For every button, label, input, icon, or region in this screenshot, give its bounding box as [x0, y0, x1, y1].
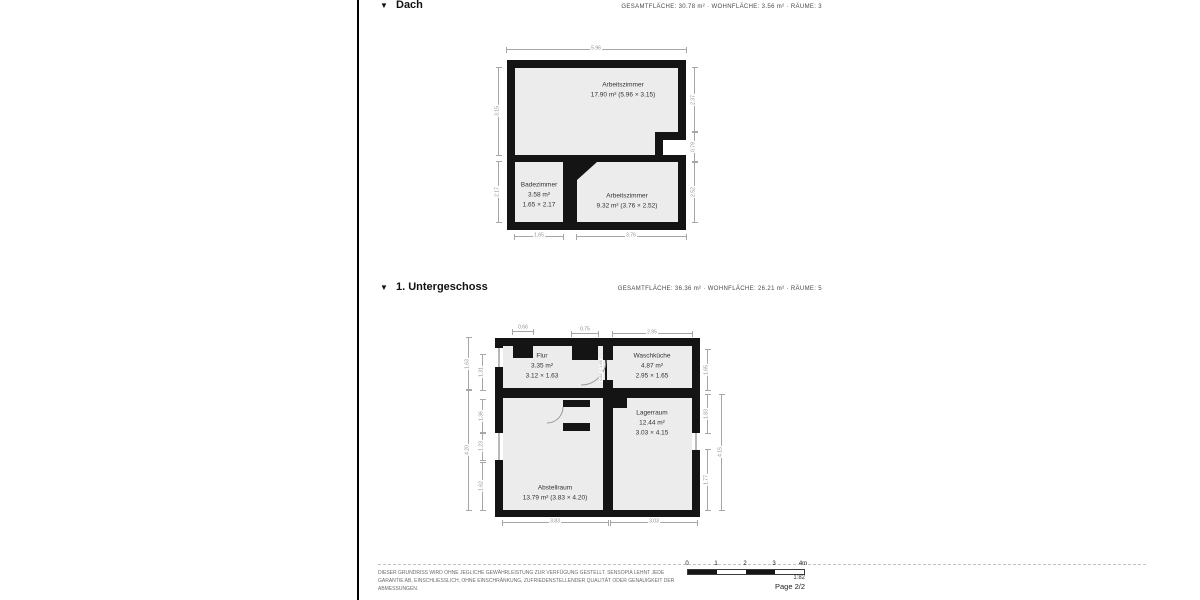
- scale-tick-label: 4m: [799, 561, 807, 567]
- wall: [503, 388, 692, 398]
- dimension-label: 2.37: [692, 94, 697, 106]
- room-label-abstellraum: Abstellraum 13.79 m² (3.83 × 4.20): [523, 483, 588, 503]
- dimension-label: 3.83: [549, 520, 561, 525]
- page-number: Page 2/2: [687, 582, 805, 591]
- section-stats: GESAMTFLÄCHE: 36.36 m² · WOHNFLÄCHE: 26.…: [618, 286, 822, 292]
- wall: [563, 155, 577, 230]
- dimension-label: 5.96: [590, 47, 602, 52]
- room-name: Abstellraum: [523, 483, 588, 493]
- dimension-line: [513, 331, 533, 332]
- dimension-label: 1.63: [466, 358, 471, 370]
- wall-stub: [563, 400, 590, 407]
- wall: [678, 155, 686, 230]
- scale-ratio: 1:82: [687, 575, 805, 581]
- wall-recess: [663, 140, 686, 155]
- wall: [507, 155, 686, 162]
- scale-segment: [688, 570, 717, 574]
- room-size: 3.12 × 1.63: [526, 371, 559, 381]
- dimension-label: 3.76: [625, 234, 637, 239]
- wall-stub: [563, 423, 590, 431]
- wall: [507, 60, 515, 230]
- dimension-line: [572, 333, 598, 334]
- wall: [678, 60, 686, 132]
- window-glass: [498, 433, 500, 460]
- room-area: 3.35 m²: [526, 361, 559, 371]
- room-area: 4.87 m²: [634, 361, 671, 371]
- dimension-label: 1.65: [533, 234, 545, 239]
- collapse-triangle-icon[interactable]: ▼: [380, 284, 388, 292]
- scale-segment: [746, 570, 775, 574]
- wall-notch: [572, 340, 598, 360]
- section-title: Dach: [396, 0, 423, 11]
- room-label-flur: Flur 3.35 m² 3.12 × 1.63: [526, 351, 559, 380]
- section-header-untergeschoss[interactable]: ▼ 1. Untergeschoss GESAMTFLÄCHE: 36.36 m…: [378, 283, 822, 297]
- room-size: 1.65 × 2.17: [521, 200, 557, 210]
- window-glass: [695, 433, 697, 450]
- room-size: 3.03 × 4.15: [636, 428, 669, 438]
- dimension-label: 1.65: [705, 364, 710, 376]
- room-name: Lagerraum: [636, 408, 669, 418]
- room-label-badezimmer: Badezimmer 3.58 m² 1.65 × 2.17: [521, 180, 557, 209]
- room-name: Waschküche: [634, 351, 671, 361]
- dimension-label: 1.36: [480, 410, 485, 422]
- disclaimer-text: DIESER GRUNDRISS WIRD OHNE JEGLICHE GEWÄ…: [378, 570, 678, 593]
- room-label-waschkueche: Waschküche 4.87 m² 2.95 × 1.65: [634, 351, 671, 380]
- scale-tick-label: 0: [685, 561, 688, 567]
- wall: [507, 60, 686, 68]
- floorplan-dach: Arbeitszimmer 17.90 m² (5.96 × 3.15) Bad…: [490, 40, 720, 252]
- wall: [495, 510, 700, 517]
- dimension-label: 1.31: [480, 366, 485, 378]
- room-name: Arbeitszimmer: [597, 191, 658, 201]
- room-size: 2.95 × 1.65: [634, 371, 671, 381]
- dimension-label: 0.66: [517, 326, 529, 331]
- scale-tick-label: 2: [743, 561, 746, 567]
- dimension-label: 0.82: [599, 372, 603, 382]
- room-detail: 13.79 m² (3.83 × 4.20): [523, 493, 588, 503]
- dimension-label: 0.79: [692, 141, 697, 153]
- dimension-label: 0.75: [579, 328, 591, 333]
- room-name: Badezimmer: [521, 180, 557, 190]
- room-label-arbeitszimmer-bottom: Arbeitszimmer 9.32 m² (3.76 × 2.52): [597, 191, 658, 211]
- wall: [507, 222, 686, 230]
- scale-bar: 0 1 2 3 4m 1:82 Page 2/2: [687, 561, 805, 593]
- room-detail: 9.32 m² (3.76 × 2.52): [597, 201, 658, 211]
- page-edge-divider: [357, 0, 359, 600]
- dimension-label: 4.15: [719, 446, 724, 458]
- room-detail: 17.90 m² (5.96 × 3.15): [591, 90, 656, 100]
- dimension-label: 3.15: [496, 105, 501, 117]
- room-name: Flur: [526, 351, 559, 361]
- dimension-label: 1.65: [599, 359, 603, 369]
- floorplan-document-page: ▼ Dach GESAMTFLÄCHE: 30.78 m² · WOHNFLÄC…: [0, 0, 1200, 600]
- section-stats: GESAMTFLÄCHE: 30.78 m² · WOHNFLÄCHE: 3.5…: [621, 4, 822, 10]
- dimension-label: 2.52: [692, 186, 697, 198]
- dimension-label: 4.20: [466, 444, 471, 456]
- scale-tick-label: 1: [714, 561, 717, 567]
- wall: [603, 338, 613, 360]
- wall: [603, 398, 613, 510]
- dimension-label: 1.83: [705, 408, 710, 420]
- wall: [655, 132, 663, 155]
- dimension-label: 1.23: [480, 440, 485, 452]
- dimension-label: 2.95: [646, 331, 658, 336]
- collapse-triangle-icon[interactable]: ▼: [380, 2, 388, 10]
- page-footer: DIESER GRUNDRISS WIRD OHNE JEGLICHE GEWÄ…: [378, 564, 1146, 599]
- floorplan-untergeschoss: Flur 3.35 m² 3.12 × 1.63 Waschküche 4.87…: [455, 320, 745, 535]
- dimension-label: 1.77: [705, 474, 710, 486]
- section-title: 1. Untergeschoss: [396, 281, 488, 293]
- room-area: 3.58 m²: [521, 190, 557, 200]
- scale-segment: [775, 570, 804, 574]
- wall: [692, 338, 700, 517]
- window-glass: [498, 348, 500, 367]
- room-area: 12.44 m²: [636, 418, 669, 428]
- dimension-label: 2.17: [496, 186, 501, 198]
- dimension-label: 1.62: [480, 480, 485, 492]
- room-name: Arbeitszimmer: [591, 80, 656, 90]
- wall: [613, 391, 627, 408]
- room-label-arbeitszimmer-top: Arbeitszimmer 17.90 m² (5.96 × 3.15): [591, 80, 656, 100]
- section-header-dach[interactable]: ▼ Dach GESAMTFLÄCHE: 30.78 m² · WOHNFLÄC…: [378, 1, 822, 15]
- room-label-lagerraum: Lagerraum 12.44 m² 3.03 × 4.15: [636, 408, 669, 437]
- scale-segment: [717, 570, 746, 574]
- dimension-label: 3.03: [648, 520, 660, 525]
- scale-tick-label: 3: [772, 561, 775, 567]
